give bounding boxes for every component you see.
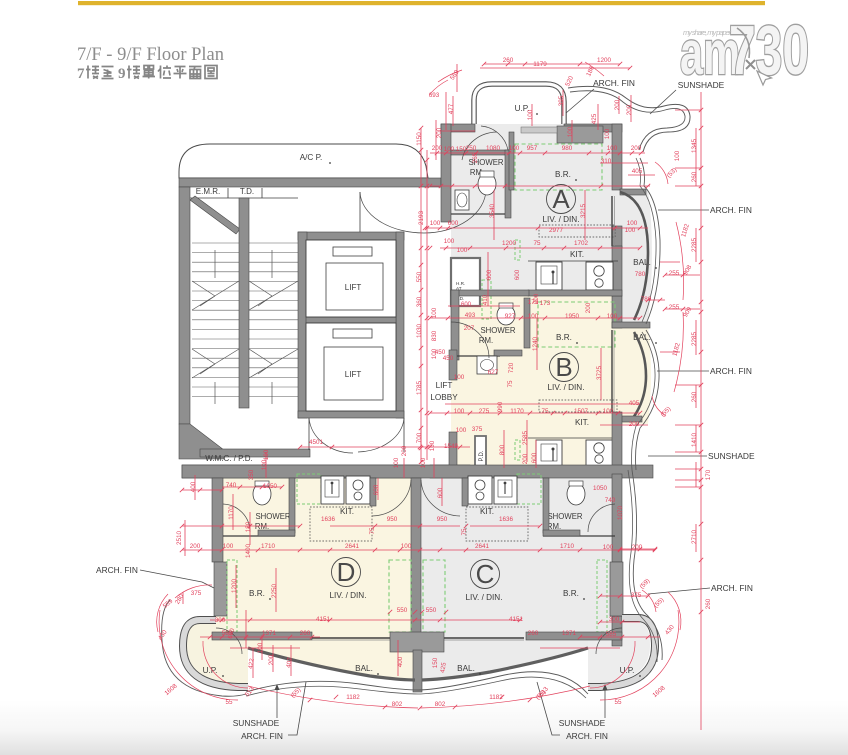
- svg-text:my share, my paper: my share, my paper: [683, 28, 732, 37]
- svg-text:360: 360: [416, 296, 423, 307]
- svg-text:100: 100: [444, 146, 455, 153]
- svg-text:LIFT: LIFT: [436, 381, 453, 390]
- svg-text:9: 9: [118, 66, 126, 82]
- svg-text:SUNSHADE: SUNSHADE: [708, 451, 755, 461]
- svg-text:260: 260: [528, 630, 539, 637]
- svg-text:450: 450: [443, 355, 454, 362]
- svg-text:600: 600: [486, 269, 493, 280]
- svg-text:260: 260: [503, 57, 514, 64]
- svg-text:200: 200: [268, 654, 275, 665]
- svg-text:255: 255: [669, 270, 680, 277]
- svg-text:1950: 1950: [565, 313, 580, 320]
- svg-text:405: 405: [632, 168, 643, 175]
- svg-text:KIT.: KIT.: [340, 507, 354, 516]
- svg-text:740: 740: [226, 482, 237, 489]
- svg-text:SUNSHADE: SUNSHADE: [678, 80, 725, 90]
- svg-text:800: 800: [499, 444, 506, 455]
- svg-text:100: 100: [393, 457, 400, 468]
- svg-text:627: 627: [488, 369, 499, 376]
- svg-text:550: 550: [416, 271, 423, 282]
- svg-text:1636: 1636: [321, 516, 336, 523]
- svg-text:400: 400: [397, 656, 404, 667]
- svg-text:1785: 1785: [416, 381, 423, 396]
- svg-text:100: 100: [401, 543, 412, 550]
- svg-text:1200: 1200: [597, 57, 612, 64]
- svg-text:ARCH. FIN: ARCH. FIN: [593, 78, 635, 88]
- svg-text:100: 100: [454, 408, 465, 415]
- svg-text:180: 180: [245, 521, 252, 532]
- svg-text:BAL.: BAL.: [457, 664, 475, 673]
- svg-text:1050: 1050: [593, 485, 608, 492]
- svg-text:B.R.: B.R.: [563, 589, 579, 598]
- svg-text:100: 100: [603, 408, 614, 415]
- svg-text:250: 250: [466, 145, 477, 152]
- svg-text:KIT.: KIT.: [570, 250, 584, 259]
- svg-text:450: 450: [435, 349, 446, 356]
- svg-text:100: 100: [431, 307, 438, 318]
- svg-text:SHOWER: SHOWER: [255, 512, 290, 521]
- svg-text:173: 173: [540, 300, 551, 307]
- svg-text:600: 600: [461, 302, 472, 308]
- svg-text:100: 100: [420, 457, 427, 468]
- svg-text:C: C: [476, 559, 495, 589]
- svg-text:2710: 2710: [691, 530, 698, 545]
- svg-text:SUNSHADE: SUNSHADE: [559, 718, 606, 728]
- svg-text:7/F - 9/F Floor Plan: 7/F - 9/F Floor Plan: [77, 45, 224, 65]
- svg-text:1030: 1030: [416, 324, 423, 339]
- svg-text:100: 100: [527, 109, 534, 120]
- svg-text:LOBBY: LOBBY: [430, 393, 458, 402]
- svg-text:ARCH. FIN: ARCH. FIN: [710, 366, 752, 376]
- svg-text:1080: 1080: [486, 145, 501, 152]
- svg-text:KIT.: KIT.: [575, 418, 589, 427]
- svg-text:600: 600: [448, 220, 459, 227]
- svg-text:395: 395: [558, 95, 565, 106]
- svg-text:ARCH. FIN: ARCH. FIN: [241, 731, 283, 741]
- svg-text:100: 100: [607, 145, 618, 152]
- svg-text:1182: 1182: [346, 694, 360, 701]
- svg-text:LIFT: LIFT: [345, 370, 362, 379]
- svg-text:1170: 1170: [228, 506, 235, 520]
- svg-text:1549: 1549: [444, 443, 459, 450]
- svg-text:1070: 1070: [617, 506, 624, 521]
- svg-text:100: 100: [429, 440, 436, 451]
- svg-text:SHOWER: SHOWER: [547, 512, 582, 521]
- svg-text:100: 100: [454, 374, 465, 381]
- svg-text:1710: 1710: [560, 543, 575, 550]
- svg-text:260: 260: [691, 391, 698, 402]
- svg-text:100: 100: [627, 220, 638, 227]
- svg-text:75: 75: [541, 408, 549, 415]
- svg-text:200: 200: [401, 445, 408, 456]
- svg-text:255: 255: [669, 304, 680, 311]
- svg-text:75: 75: [533, 240, 541, 247]
- svg-text:100: 100: [528, 313, 539, 320]
- svg-text:830: 830: [431, 330, 438, 341]
- svg-text:SHOWER: SHOWER: [480, 326, 515, 335]
- svg-text:600: 600: [514, 269, 521, 280]
- svg-text:1702: 1702: [574, 240, 589, 247]
- svg-text:100: 100: [603, 544, 614, 551]
- svg-text:SUNSHADE: SUNSHADE: [233, 718, 280, 728]
- svg-text:200: 200: [626, 104, 633, 115]
- svg-text:493: 493: [465, 312, 476, 319]
- svg-text:B: B: [555, 352, 572, 382]
- svg-text:100: 100: [607, 313, 618, 320]
- svg-text:950: 950: [437, 516, 448, 523]
- svg-text:B.R.: B.R.: [555, 170, 571, 179]
- svg-text:200: 200: [631, 145, 642, 152]
- svg-text:260: 260: [691, 171, 698, 182]
- svg-text:A/C P.: A/C P.: [300, 153, 323, 162]
- svg-text:477: 477: [448, 103, 455, 114]
- svg-text:350: 350: [248, 469, 255, 480]
- svg-text:ARCH. FIN: ARCH. FIN: [710, 205, 752, 215]
- svg-text:KIT.: KIT.: [480, 507, 494, 516]
- svg-text:300: 300: [609, 616, 620, 623]
- svg-text:950: 950: [387, 516, 398, 523]
- svg-text:1710: 1710: [261, 543, 276, 550]
- svg-text:100: 100: [263, 449, 270, 460]
- svg-text:100: 100: [457, 247, 468, 254]
- svg-text:600: 600: [531, 452, 538, 463]
- svg-text:7: 7: [77, 66, 85, 82]
- svg-text:LIV. / DIN.: LIV. / DIN.: [465, 593, 502, 602]
- svg-text:700: 700: [416, 432, 423, 443]
- svg-text:780: 780: [635, 271, 646, 278]
- svg-text:100: 100: [261, 459, 268, 470]
- svg-text:T.D.: T.D.: [240, 187, 254, 196]
- svg-text:170: 170: [705, 469, 712, 480]
- svg-text:1200: 1200: [231, 579, 238, 594]
- svg-text:BAL.: BAL.: [355, 664, 373, 673]
- svg-text:1371: 1371: [562, 630, 577, 637]
- svg-text:200: 200: [436, 127, 443, 138]
- svg-text:B.R.: B.R.: [556, 333, 572, 342]
- svg-text:425: 425: [591, 113, 598, 124]
- svg-text:400: 400: [190, 481, 197, 492]
- svg-text:4501: 4501: [309, 439, 324, 446]
- svg-text:550: 550: [397, 607, 408, 614]
- svg-text:1150: 1150: [416, 132, 423, 146]
- svg-text:1400: 1400: [245, 544, 252, 559]
- svg-text:410: 410: [482, 294, 489, 305]
- svg-text:375: 375: [191, 590, 202, 597]
- svg-text:LIV. / DIN.: LIV. / DIN.: [329, 591, 366, 600]
- svg-text:200: 200: [432, 145, 443, 152]
- svg-text:200: 200: [629, 421, 640, 428]
- svg-text:2510: 2510: [176, 531, 183, 546]
- svg-text:1410: 1410: [691, 433, 698, 448]
- svg-text:100: 100: [456, 427, 467, 434]
- svg-text:100: 100: [674, 150, 681, 161]
- svg-text:55: 55: [614, 699, 622, 706]
- svg-text:1371: 1371: [262, 630, 277, 637]
- svg-text:1179: 1179: [533, 61, 547, 68]
- svg-text:W.M.C. / P.D.: W.M.C. / P.D.: [205, 454, 252, 463]
- svg-text:ARCH. FIN: ARCH. FIN: [96, 565, 138, 575]
- svg-text:1507: 1507: [574, 408, 589, 415]
- svg-text:2641: 2641: [475, 543, 490, 550]
- svg-text:E.M.R.: E.M.R.: [196, 187, 220, 196]
- svg-text:2285: 2285: [691, 332, 698, 347]
- svg-text:260: 260: [300, 630, 311, 637]
- svg-text:1345: 1345: [691, 139, 698, 154]
- svg-text:2250: 2250: [271, 584, 278, 599]
- svg-text:100: 100: [257, 642, 264, 653]
- svg-text:2585: 2585: [522, 431, 529, 446]
- svg-text:U.P.: U.P.: [620, 666, 635, 675]
- svg-text:ARCH. FIN: ARCH. FIN: [711, 583, 753, 593]
- svg-text:LIV. / DIN.: LIV. / DIN.: [542, 215, 579, 224]
- svg-text:100: 100: [625, 227, 636, 234]
- svg-text:927: 927: [505, 313, 516, 320]
- svg-text:275: 275: [479, 408, 490, 415]
- svg-text:600: 600: [373, 484, 380, 495]
- svg-text:1200: 1200: [502, 240, 517, 247]
- svg-text:A: A: [552, 184, 570, 214]
- svg-text:P.D.: P.D.: [479, 450, 485, 461]
- svg-text:2977: 2977: [549, 227, 564, 234]
- svg-text:1636: 1636: [499, 516, 514, 523]
- svg-text:D: D: [337, 557, 356, 587]
- svg-text:3725: 3725: [596, 366, 603, 381]
- svg-text:310: 310: [601, 158, 612, 165]
- svg-text:200: 200: [585, 302, 592, 313]
- svg-text:2193: 2193: [418, 211, 425, 226]
- svg-text:LIFT: LIFT: [345, 283, 362, 292]
- svg-text:1240: 1240: [532, 337, 539, 352]
- svg-text:100: 100: [223, 543, 234, 550]
- svg-text:75: 75: [507, 380, 514, 388]
- svg-text:375: 375: [472, 426, 483, 433]
- svg-text:980: 980: [562, 145, 573, 152]
- svg-text:200: 200: [190, 543, 201, 550]
- svg-text:2285: 2285: [691, 238, 698, 253]
- svg-text:585: 585: [606, 631, 617, 638]
- svg-text:200: 200: [522, 453, 529, 464]
- svg-text:200: 200: [614, 99, 621, 110]
- svg-text:100: 100: [604, 128, 611, 139]
- svg-text:100: 100: [430, 220, 441, 227]
- svg-text:3540: 3540: [489, 204, 496, 219]
- svg-text:207: 207: [464, 325, 475, 332]
- svg-text:LIV. / DIN.: LIV. / DIN.: [547, 383, 584, 392]
- svg-text:ARCH. FIN: ARCH. FIN: [566, 731, 608, 741]
- svg-text:1170: 1170: [510, 408, 524, 415]
- svg-text:2641: 2641: [345, 543, 360, 550]
- svg-text:75: 75: [461, 528, 468, 536]
- svg-text:3215: 3215: [580, 204, 587, 219]
- svg-text:957: 957: [527, 145, 538, 152]
- svg-text:100: 100: [509, 145, 520, 152]
- svg-text:990: 990: [497, 401, 504, 412]
- svg-text:75: 75: [369, 527, 376, 535]
- svg-text:100: 100: [444, 238, 455, 245]
- svg-text:260: 260: [705, 598, 712, 609]
- svg-text:RM.: RM.: [255, 522, 269, 531]
- svg-text:405: 405: [629, 400, 640, 407]
- svg-text:150: 150: [432, 657, 439, 668]
- svg-text:1050: 1050: [263, 483, 278, 490]
- svg-text:375: 375: [631, 592, 642, 599]
- svg-text:720: 720: [508, 362, 515, 373]
- svg-text:740: 740: [605, 497, 616, 504]
- svg-text:600: 600: [437, 487, 444, 498]
- svg-text:4151: 4151: [509, 616, 524, 623]
- svg-text:550: 550: [426, 607, 437, 614]
- svg-text:100: 100: [567, 126, 574, 137]
- svg-text:B.R.: B.R.: [249, 589, 265, 598]
